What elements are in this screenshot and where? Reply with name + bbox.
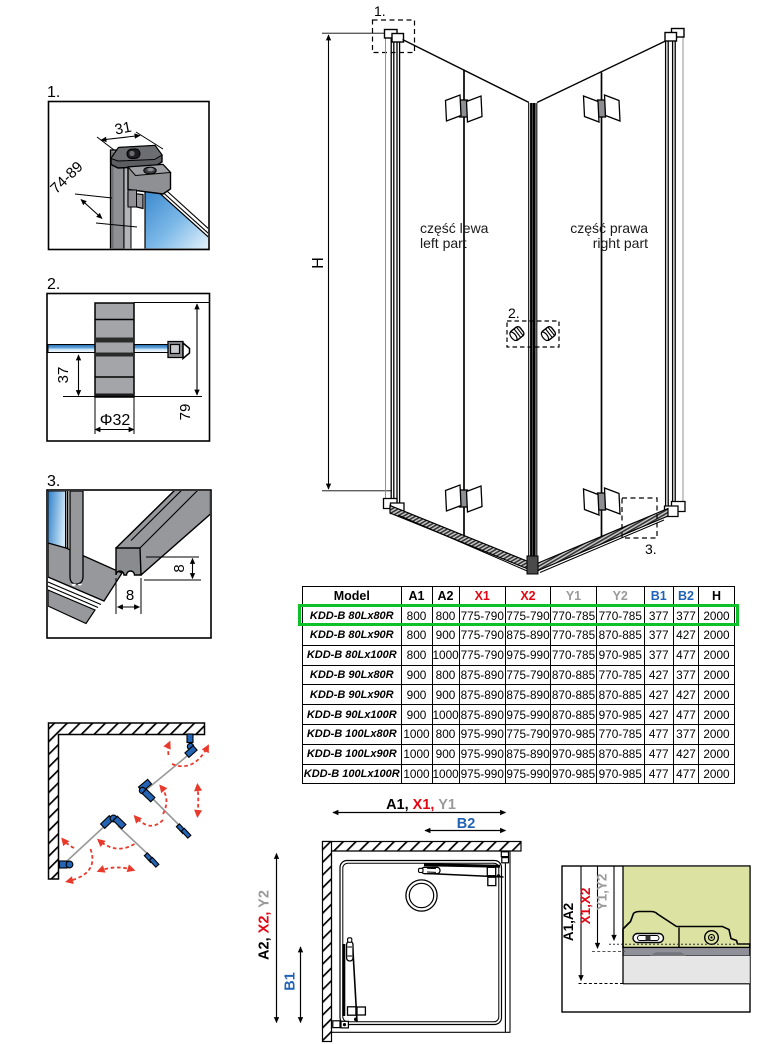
svg-text:8: 8	[126, 587, 134, 604]
svg-text:3.: 3.	[47, 473, 60, 490]
svg-text:31: 31	[113, 119, 133, 139]
svg-text:79: 79	[177, 404, 194, 421]
svg-text:3.: 3.	[645, 541, 657, 557]
svg-text:część lewa: część lewa	[420, 220, 489, 236]
svg-text:X1,X2: X1,X2	[578, 888, 593, 925]
svg-text:B2: B2	[457, 816, 476, 832]
svg-text:1.: 1.	[47, 84, 60, 101]
svg-text:A1,A2: A1,A2	[561, 903, 576, 941]
svg-text:8: 8	[171, 564, 188, 572]
svg-text:Y1,Y2: Y1,Y2	[595, 874, 610, 911]
svg-text:left part: left part	[420, 235, 467, 251]
svg-text:1.: 1.	[374, 3, 386, 19]
svg-text:H: H	[310, 257, 327, 269]
svg-text:część prawa: część prawa	[570, 220, 648, 236]
svg-text:2.: 2.	[47, 276, 60, 293]
svg-text:A1, X1, Y1: A1, X1, Y1	[386, 797, 456, 813]
svg-text:37: 37	[55, 367, 72, 384]
svg-text:2.: 2.	[508, 305, 520, 321]
svg-text:A2, X2, Y2: A2, X2, Y2	[257, 890, 273, 960]
svg-text:B1: B1	[283, 972, 299, 991]
svg-text:Φ32: Φ32	[100, 412, 131, 429]
svg-text:right part: right part	[593, 235, 648, 251]
